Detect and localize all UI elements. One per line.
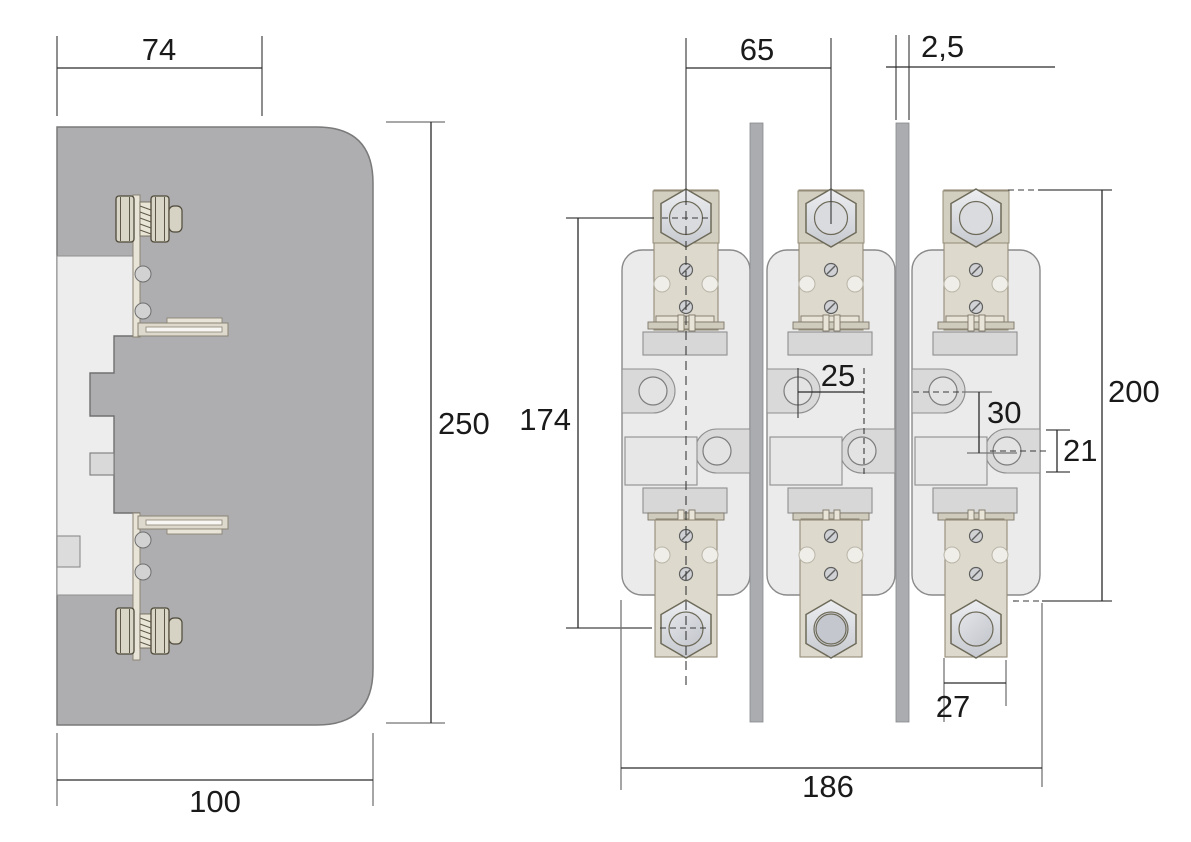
side-view [57, 127, 373, 725]
dim-label-21: 21 [1063, 433, 1097, 468]
side-step-block [90, 336, 286, 513]
dim-label-30: 30 [987, 395, 1021, 430]
pole-2-bottom-nut [816, 614, 846, 644]
dim-label-2-5: 2,5 [921, 29, 964, 64]
phase-separator-1 [750, 123, 763, 722]
dim-label-27: 27 [936, 689, 970, 724]
drawing-canvas: 74 250 100 65 2,5 174 200 [0, 0, 1191, 842]
side-step-tab [90, 453, 114, 475]
dim-label-174: 174 [519, 402, 571, 437]
blade-hole [135, 303, 151, 319]
dim-label-74: 74 [142, 32, 176, 67]
dim-label-65: 65 [740, 32, 774, 67]
phase-separator-2 [896, 123, 909, 722]
blade-hole [135, 532, 151, 548]
dim-label-200: 200 [1108, 374, 1160, 409]
dim-label-186: 186 [802, 769, 854, 804]
dim-label-25: 25 [821, 358, 855, 393]
blade-hole [135, 564, 151, 580]
dim-label-100: 100 [189, 784, 241, 819]
blade-hole [135, 266, 151, 282]
technical-dimension-drawing: 74 250 100 65 2,5 174 200 [0, 0, 1191, 842]
dim-label-250: 250 [438, 406, 490, 441]
pole-2 [767, 189, 895, 658]
side-lower-left-block [57, 536, 80, 567]
